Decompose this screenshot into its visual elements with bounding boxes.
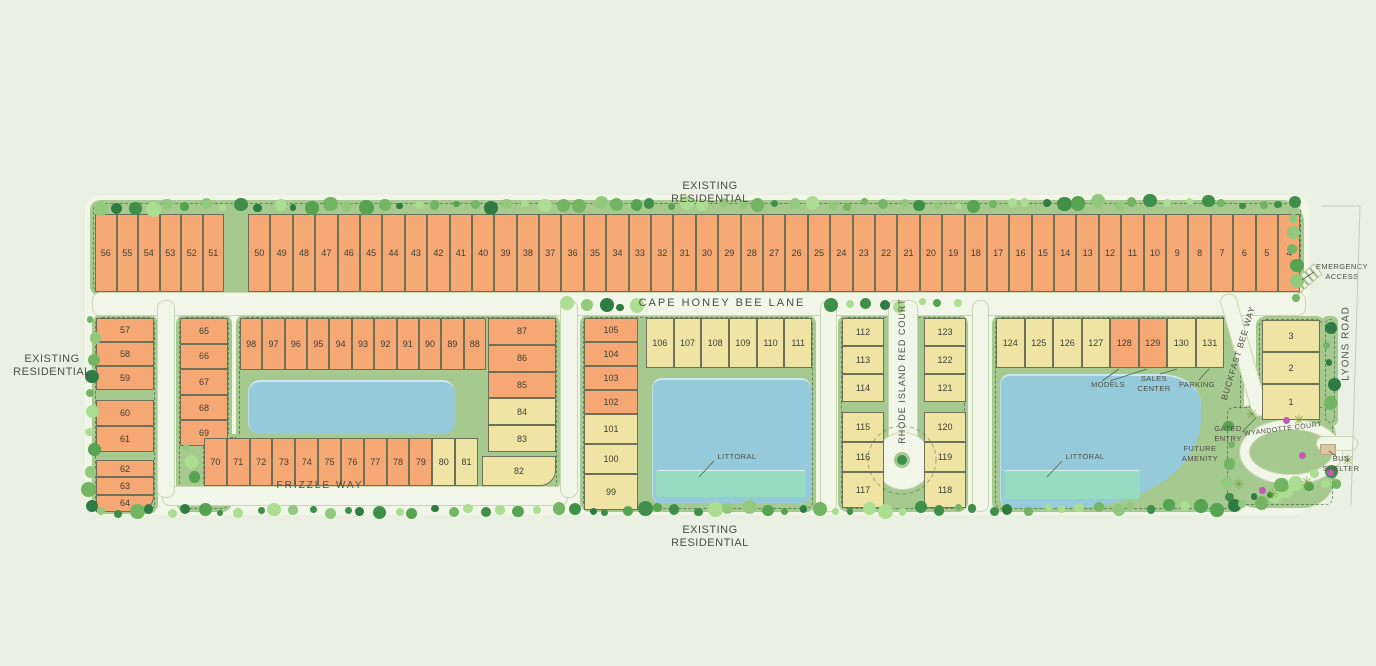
lot-24[interactable]: 24 (830, 214, 852, 292)
label-littoral-lake3: LITTORAL (1060, 452, 1110, 462)
lot-15[interactable]: 15 (1032, 214, 1054, 292)
lot-42[interactable]: 42 (427, 214, 449, 292)
tree-icon (743, 500, 757, 514)
lot-46[interactable]: 46 (338, 214, 360, 292)
lot-56[interactable]: 56 (95, 214, 117, 292)
tree-icon (1221, 477, 1233, 489)
tree-icon (180, 202, 189, 211)
lot-79[interactable]: 79 (409, 438, 432, 486)
lot-121[interactable]: 121 (924, 374, 966, 402)
lot-125[interactable]: 125 (1025, 318, 1054, 368)
tree-icon (323, 197, 338, 212)
lot-41[interactable]: 41 (450, 214, 472, 292)
tree-icon (1287, 226, 1300, 239)
lot-74[interactable]: 74 (295, 438, 318, 486)
tree-icon (1321, 479, 1330, 488)
lot-group-top_main: 5049484746454443424140393837363534333231… (248, 214, 1300, 292)
lot-63[interactable]: 63 (96, 477, 154, 494)
lot-107[interactable]: 107 (674, 318, 702, 368)
lot-65[interactable]: 65 (180, 318, 228, 344)
lot-104[interactable]: 104 (584, 342, 638, 366)
tree-icon (934, 505, 945, 516)
tree-icon (275, 199, 287, 211)
lot-31[interactable]: 31 (673, 214, 695, 292)
street-connector-west[interactable] (157, 300, 175, 498)
lot-55[interactable]: 55 (117, 214, 139, 292)
tree-icon (199, 503, 212, 516)
tree-icon (1058, 505, 1065, 512)
lot-113[interactable]: 113 (842, 346, 884, 374)
tree-icon (1289, 196, 1301, 208)
tree-icon (1024, 507, 1033, 516)
lot-39[interactable]: 39 (494, 214, 516, 292)
tree-icon (234, 198, 248, 212)
lot-40[interactable]: 40 (472, 214, 494, 292)
lot-23[interactable]: 23 (853, 214, 875, 292)
lot-77[interactable]: 77 (364, 438, 387, 486)
lot-12[interactable]: 12 (1099, 214, 1121, 292)
tree-icon (185, 455, 199, 469)
tree-icon (1217, 199, 1225, 207)
label-cape-honey-bee-lane: CAPE HONEY BEE LANE (602, 297, 842, 309)
lot-75[interactable]: 75 (318, 438, 341, 486)
lot-49[interactable]: 49 (270, 214, 292, 292)
tree-icon (233, 508, 243, 518)
tree-icon (1113, 504, 1125, 516)
lot-108[interactable]: 108 (701, 318, 729, 368)
lot-group-b2_left: 10510410310210110099 (584, 318, 638, 510)
lot-112[interactable]: 112 (842, 318, 884, 346)
tree-icon (708, 502, 722, 516)
tree-icon (899, 508, 907, 516)
label-parking: PARKING (1172, 380, 1222, 390)
tree-icon (806, 196, 819, 209)
lot-48[interactable]: 48 (293, 214, 315, 292)
lot-89[interactable]: 89 (441, 318, 463, 370)
tree-icon (258, 507, 265, 514)
lot-100[interactable]: 100 (584, 444, 638, 474)
label-frizzle-way: FRIZZLE WAY (255, 480, 385, 491)
tree-icon (644, 198, 655, 209)
lake-1 (248, 380, 455, 434)
lot-62[interactable]: 62 (96, 460, 154, 477)
lot-group-b1_corner: 82 (482, 456, 556, 486)
lot-59[interactable]: 59 (96, 366, 154, 390)
palm-tree-icon: ✳ (1301, 475, 1313, 489)
tree-icon (86, 389, 94, 397)
lot-78[interactable]: 78 (387, 438, 410, 486)
lot-group-b1_right: 8786858483 (488, 318, 556, 452)
tree-icon (560, 296, 574, 310)
lot-53[interactable]: 53 (160, 214, 182, 292)
lot-group-col65: 6566676869 (180, 318, 228, 446)
tree-icon (829, 202, 838, 211)
lot-54[interactable]: 54 (138, 214, 160, 292)
lot-72[interactable]: 72 (250, 438, 273, 486)
lot-group-mid_r_top: 123122121 (924, 318, 966, 402)
flowering-shrub-icon (1259, 487, 1266, 494)
tree-icon (129, 202, 141, 214)
label-existing-residential-north: EXISTING RESIDENTIAL (665, 180, 755, 206)
street-connector-block3-west[interactable] (972, 300, 989, 512)
tree-icon (722, 503, 733, 514)
lot-94[interactable]: 94 (329, 318, 351, 370)
lot-26[interactable]: 26 (785, 214, 807, 292)
label-gated-entry: GATED ENTRY (1206, 424, 1250, 443)
tree-icon (934, 202, 942, 210)
tree-icon (557, 199, 570, 212)
lot-3[interactable]: 3 (1262, 320, 1320, 352)
tree-icon (379, 199, 391, 211)
tree-icon (1008, 198, 1018, 208)
lake-3-littoral-shelf (1004, 470, 1140, 499)
label-sales-center: SALES CENTER (1130, 374, 1178, 393)
lot-93[interactable]: 93 (352, 318, 374, 370)
tree-icon (415, 201, 424, 210)
tree-icon (396, 203, 402, 209)
tree-icon (183, 444, 190, 451)
lot-group-b2_top: 106107108109110111 (646, 318, 812, 368)
lot-102[interactable]: 102 (584, 390, 638, 414)
lot-83[interactable]: 83 (488, 425, 556, 452)
tree-icon (217, 510, 223, 516)
lot-34[interactable]: 34 (606, 214, 628, 292)
tree-icon (495, 505, 505, 515)
tree-icon (538, 199, 551, 212)
tree-icon (1274, 201, 1281, 208)
tree-icon (521, 200, 528, 207)
tree-icon (90, 332, 101, 343)
lot-116[interactable]: 116 (842, 442, 884, 472)
lot-96[interactable]: 96 (285, 318, 307, 370)
lot-2[interactable]: 2 (1262, 352, 1320, 384)
lot-129[interactable]: 129 (1139, 318, 1168, 368)
tree-icon (1332, 479, 1342, 489)
tree-icon (1091, 194, 1105, 208)
lot-8[interactable]: 8 (1188, 214, 1210, 292)
tree-icon (863, 502, 876, 515)
tree-icon (144, 504, 153, 513)
lot-group-top_west: 565554535251 (95, 214, 224, 292)
lot-14[interactable]: 14 (1054, 214, 1076, 292)
tree-icon (915, 501, 927, 513)
lot-106[interactable]: 106 (646, 318, 674, 368)
tree-icon (790, 198, 801, 209)
lot-105[interactable]: 105 (584, 318, 638, 342)
tree-icon (1292, 294, 1300, 302)
tree-icon (310, 506, 317, 513)
tree-icon (85, 428, 94, 437)
lot-11[interactable]: 11 (1121, 214, 1143, 292)
tree-icon (1328, 378, 1342, 392)
lot-61[interactable]: 61 (96, 426, 154, 452)
lot-21[interactable]: 21 (897, 214, 919, 292)
tree-icon (111, 203, 122, 214)
tree-icon (1289, 214, 1298, 223)
lot-109[interactable]: 109 (729, 318, 757, 368)
lot-25[interactable]: 25 (808, 214, 830, 292)
tree-icon (481, 507, 491, 517)
lot-5[interactable]: 5 (1256, 214, 1278, 292)
lot-95[interactable]: 95 (307, 318, 329, 370)
tree-icon (878, 504, 893, 519)
lot-111[interactable]: 111 (784, 318, 812, 368)
lot-group-mid_l_bot: 115116117 (842, 412, 884, 508)
tree-icon (189, 471, 200, 482)
tree-icon (512, 506, 523, 517)
lot-36[interactable]: 36 (561, 214, 583, 292)
lot-117[interactable]: 117 (842, 472, 884, 508)
tree-icon (1290, 274, 1304, 288)
tree-icon (846, 300, 854, 308)
lot-130[interactable]: 130 (1167, 318, 1196, 368)
tree-icon (1202, 195, 1215, 208)
label-emergency-access: EMERGENCY ACCESS (1312, 262, 1372, 281)
lot-group-b3_top: 124125126127128129130131 (996, 318, 1224, 368)
palm-tree-icon: ✳ (1246, 407, 1258, 421)
lot-127[interactable]: 127 (1082, 318, 1111, 368)
lot-16[interactable]: 16 (1009, 214, 1031, 292)
lot-122[interactable]: 122 (924, 346, 966, 374)
lot-76[interactable]: 76 (341, 438, 364, 486)
tree-icon (305, 201, 319, 215)
tree-icon (990, 507, 999, 516)
lot-7[interactable]: 7 (1211, 214, 1233, 292)
lot-91[interactable]: 91 (397, 318, 419, 370)
lot-group-b1_top: 9897969594939291908988 (240, 318, 486, 370)
lot-88[interactable]: 88 (464, 318, 486, 370)
tree-icon (430, 200, 440, 210)
lot-57[interactable]: 57 (96, 318, 154, 342)
tree-icon (1057, 197, 1071, 211)
lot-38[interactable]: 38 (517, 214, 539, 292)
tree-icon (694, 508, 703, 517)
tree-icon (406, 508, 417, 519)
lot-120[interactable]: 120 (924, 412, 966, 442)
tree-icon (1115, 202, 1124, 211)
lot-43[interactable]: 43 (405, 214, 427, 292)
lot-50[interactable]: 50 (248, 214, 270, 292)
lot-66[interactable]: 66 (180, 344, 228, 370)
tree-icon (860, 298, 871, 309)
flowering-shrub-icon (1283, 417, 1290, 424)
tree-icon (933, 299, 941, 307)
label-existing-residential-west: EXISTING RESIDENTIAL (7, 353, 97, 379)
lot-19[interactable]: 19 (942, 214, 964, 292)
tree-icon (601, 509, 609, 517)
lot-1[interactable]: 1 (1262, 384, 1320, 420)
lot-90[interactable]: 90 (419, 318, 441, 370)
lot-82[interactable]: 82 (482, 456, 556, 486)
label-future-amenity: FUTURE AMENITY (1172, 444, 1228, 463)
tree-icon (373, 506, 386, 519)
lake-2-littoral-shelf (656, 470, 806, 497)
lot-103[interactable]: 103 (584, 366, 638, 390)
tree-icon (1074, 503, 1083, 512)
site-plan-map: EXISTING RESIDENTIAL EXISTING RESIDENTIA… (0, 0, 1376, 666)
lot-101[interactable]: 101 (584, 414, 638, 444)
tree-icon (669, 504, 679, 514)
lot-33[interactable]: 33 (629, 214, 651, 292)
lot-group-b1_bottom: 707172737475767778798081 (204, 438, 478, 486)
tree-icon (453, 201, 460, 208)
lot-group-mid_l_top: 112113114 (842, 318, 884, 402)
tree-icon (288, 505, 298, 515)
lot-44[interactable]: 44 (382, 214, 404, 292)
tree-icon (653, 503, 662, 512)
palm-tree-icon: ✳ (1233, 477, 1245, 491)
lot-6[interactable]: 6 (1233, 214, 1255, 292)
lot-13[interactable]: 13 (1076, 214, 1098, 292)
tree-icon (1325, 322, 1338, 335)
lot-51[interactable]: 51 (203, 214, 225, 292)
lot-84[interactable]: 84 (488, 398, 556, 425)
tree-icon (1143, 194, 1156, 207)
lot-group-left_b: 6061 (96, 400, 154, 452)
tree-icon (1324, 396, 1337, 409)
label-rhode-island-red-court: RHODE ISLAND RED COURT (897, 296, 907, 446)
tree-icon (569, 503, 581, 515)
tree-icon (355, 507, 364, 516)
lot-45[interactable]: 45 (360, 214, 382, 292)
street-connector-block1-east[interactable] (560, 300, 578, 498)
lot-119[interactable]: 119 (924, 442, 966, 472)
lot-30[interactable]: 30 (696, 214, 718, 292)
tree-icon (325, 508, 336, 519)
lot-80[interactable]: 80 (432, 438, 455, 486)
tree-icon (1225, 493, 1234, 502)
lot-28[interactable]: 28 (741, 214, 763, 292)
lot-73[interactable]: 73 (272, 438, 295, 486)
lot-71[interactable]: 71 (227, 438, 250, 486)
lot-67[interactable]: 67 (180, 369, 228, 395)
lot-70[interactable]: 70 (204, 438, 227, 486)
label-existing-residential-south: EXISTING RESIDENTIAL (665, 524, 755, 550)
lot-9[interactable]: 9 (1166, 214, 1188, 292)
tree-icon (897, 455, 907, 465)
lot-27[interactable]: 27 (763, 214, 785, 292)
tree-icon (1290, 259, 1303, 272)
tree-icon (880, 300, 890, 310)
lot-35[interactable]: 35 (584, 214, 606, 292)
tree-icon (114, 510, 122, 518)
lot-22[interactable]: 22 (875, 214, 897, 292)
tree-icon (345, 507, 352, 514)
lot-124[interactable]: 124 (996, 318, 1025, 368)
lot-group-left_a: 575859 (96, 318, 154, 390)
label-lyons-road: LYONS ROAD (1341, 294, 1352, 394)
tree-icon (631, 199, 643, 211)
lot-18[interactable]: 18 (965, 214, 987, 292)
label-models: MODELS (1082, 380, 1134, 390)
lot-10[interactable]: 10 (1144, 214, 1166, 292)
tree-icon (130, 504, 145, 519)
tree-icon (463, 504, 473, 514)
lot-131[interactable]: 131 (1196, 318, 1225, 368)
tree-icon (290, 204, 297, 211)
label-littoral-lake2: LITTORAL (712, 452, 762, 462)
tree-icon (85, 466, 97, 478)
tree-icon (396, 508, 404, 516)
lot-92[interactable]: 92 (374, 318, 396, 370)
lot-20[interactable]: 20 (920, 214, 942, 292)
lot-86[interactable]: 86 (488, 345, 556, 372)
lot-60[interactable]: 60 (96, 400, 154, 426)
lot-118[interactable]: 118 (924, 472, 966, 508)
tree-icon (955, 203, 962, 210)
lot-115[interactable]: 115 (842, 412, 884, 442)
tree-icon (1210, 503, 1223, 516)
lot-98[interactable]: 98 (240, 318, 262, 370)
tree-icon (533, 506, 541, 514)
tree-icon (146, 202, 161, 217)
lot-32[interactable]: 32 (651, 214, 673, 292)
tree-icon (1239, 203, 1246, 210)
lot-114[interactable]: 114 (842, 374, 884, 402)
lot-17[interactable]: 17 (987, 214, 1009, 292)
lot-group-mid_r_bot: 120119118 (924, 412, 966, 508)
tree-icon (501, 199, 511, 209)
tree-icon (967, 200, 980, 213)
lot-85[interactable]: 85 (488, 372, 556, 399)
tree-icon (1326, 359, 1333, 366)
tree-icon (623, 506, 633, 516)
lot-97[interactable]: 97 (262, 318, 284, 370)
tree-icon (968, 504, 976, 512)
label-bus-shelter: BUS SHELTER (1316, 454, 1366, 473)
tree-icon (1002, 504, 1013, 515)
lot-123[interactable]: 123 (924, 318, 966, 346)
tree-icon (1020, 198, 1029, 207)
lot-68[interactable]: 68 (180, 395, 228, 421)
lot-47[interactable]: 47 (315, 214, 337, 292)
flowering-shrub-icon (1299, 452, 1306, 459)
tree-icon (1147, 505, 1155, 513)
lot-126[interactable]: 126 (1053, 318, 1082, 368)
lot-99[interactable]: 99 (584, 474, 638, 510)
lot-group-right_col: 321 (1262, 320, 1320, 420)
street-connector-block2-east[interactable] (820, 300, 837, 512)
tree-icon (88, 443, 100, 455)
tree-icon (168, 509, 177, 518)
lot-81[interactable]: 81 (455, 438, 478, 486)
lot-128[interactable]: 128 (1110, 318, 1139, 368)
tree-icon (484, 201, 498, 215)
lot-58[interactable]: 58 (96, 342, 154, 366)
tree-icon (1251, 493, 1258, 500)
tree-icon (449, 507, 459, 517)
lot-87[interactable]: 87 (488, 318, 556, 345)
tree-icon (832, 508, 839, 515)
lot-37[interactable]: 37 (539, 214, 561, 292)
tree-icon (1045, 504, 1052, 511)
tree-icon (913, 200, 924, 211)
tree-icon (1163, 499, 1175, 511)
lot-52[interactable]: 52 (181, 214, 203, 292)
lot-29[interactable]: 29 (718, 214, 740, 292)
lot-110[interactable]: 110 (757, 318, 785, 368)
tree-icon (1127, 197, 1137, 207)
palm-tree-icon: ✳ (1267, 487, 1279, 501)
tree-icon (771, 200, 778, 207)
tree-icon (1126, 502, 1134, 510)
tree-icon (1164, 199, 1172, 207)
tree-icon (267, 503, 281, 517)
tree-icon (762, 505, 773, 516)
